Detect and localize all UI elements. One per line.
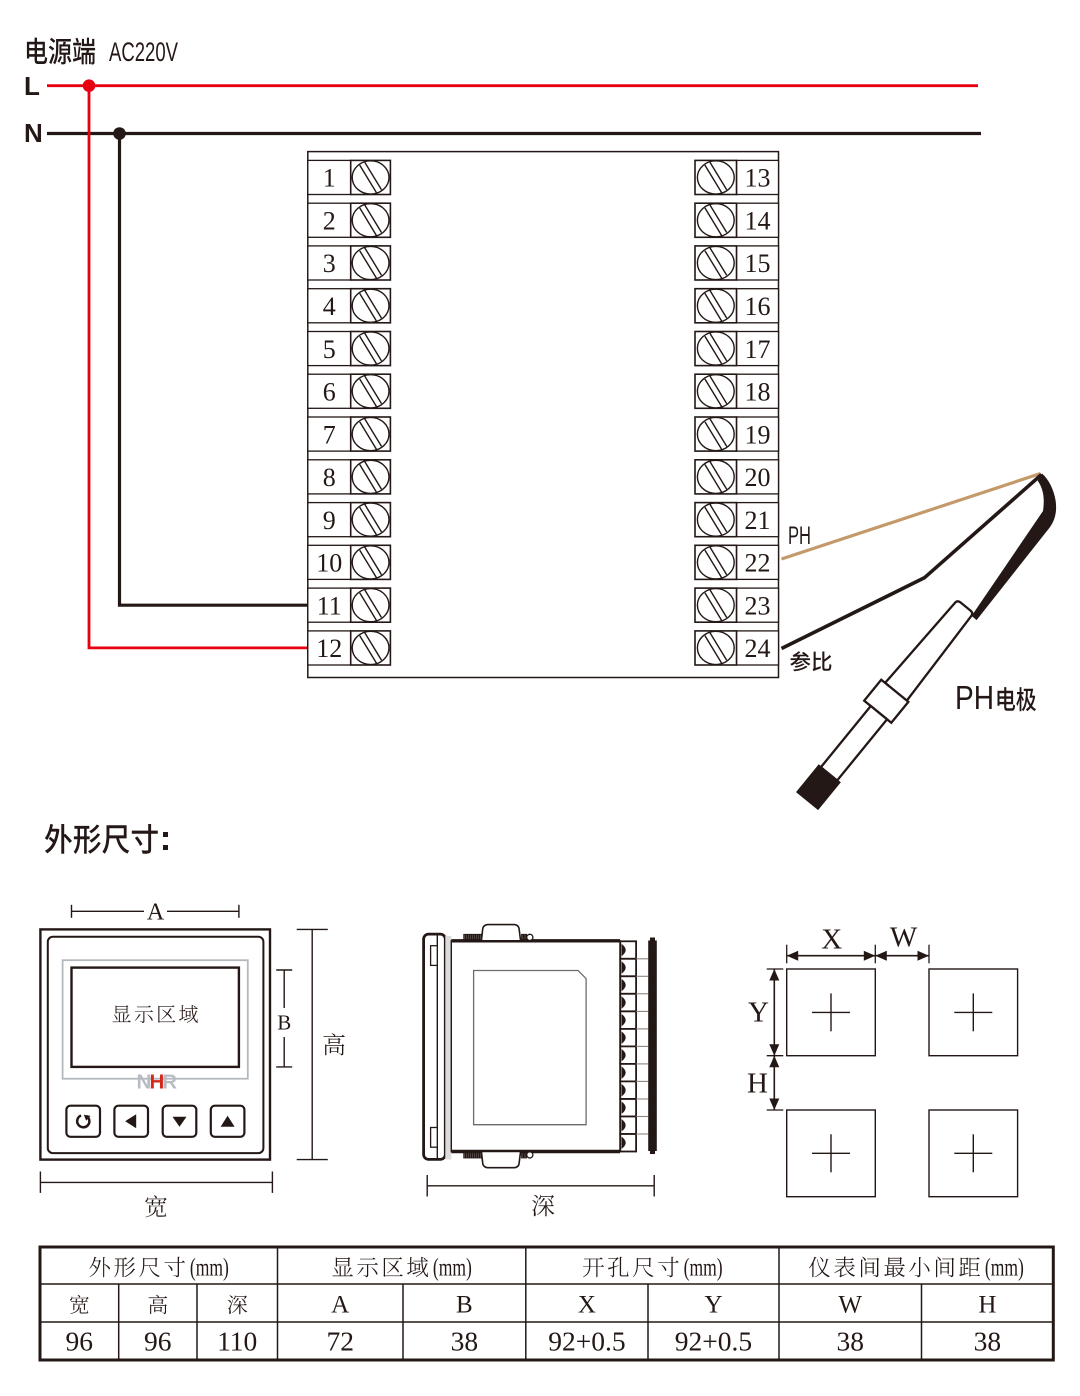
svg-text:AC220V: AC220V	[109, 37, 178, 67]
svg-text:92+0.5: 92+0.5	[548, 1326, 625, 1357]
svg-text:110: 110	[217, 1326, 257, 1357]
svg-text:17: 17	[745, 335, 771, 364]
svg-text:72: 72	[326, 1326, 354, 1357]
svg-text:24: 24	[745, 634, 771, 663]
svg-text:4: 4	[323, 292, 336, 321]
svg-text:38: 38	[974, 1326, 1002, 1357]
svg-text:96: 96	[144, 1326, 172, 1357]
svg-text:R: R	[162, 1071, 177, 1094]
svg-text:Y: Y	[704, 1292, 722, 1319]
svg-text:1: 1	[323, 164, 336, 193]
svg-text:16: 16	[745, 292, 771, 321]
svg-text:H: H	[150, 1071, 165, 1094]
svg-text:23: 23	[745, 591, 771, 620]
svg-text:38: 38	[836, 1326, 864, 1357]
svg-text:Y: Y	[748, 997, 769, 1029]
svg-text:(mm): (mm)	[433, 1255, 472, 1282]
svg-text:B: B	[456, 1292, 473, 1319]
svg-text:12: 12	[316, 634, 342, 663]
svg-text:10: 10	[316, 549, 342, 578]
svg-text:21: 21	[745, 506, 771, 535]
svg-text:3: 3	[323, 249, 336, 278]
svg-text:22: 22	[745, 549, 771, 578]
svg-text:11: 11	[317, 591, 342, 620]
svg-text:15: 15	[745, 249, 771, 278]
svg-text:N: N	[24, 118, 43, 148]
svg-text:20: 20	[745, 463, 771, 492]
svg-text:96: 96	[66, 1326, 94, 1357]
svg-text:38: 38	[451, 1326, 479, 1357]
svg-text:5: 5	[323, 335, 336, 364]
svg-text:13: 13	[745, 164, 771, 193]
svg-text:19: 19	[745, 420, 771, 449]
svg-text:A: A	[331, 1292, 349, 1319]
svg-text:14: 14	[745, 207, 771, 236]
svg-text:7: 7	[323, 420, 336, 449]
svg-text:X: X	[821, 924, 842, 956]
svg-text:PH: PH	[788, 522, 811, 550]
svg-text:8: 8	[323, 463, 336, 492]
svg-text:H: H	[978, 1292, 996, 1319]
svg-text:A: A	[147, 899, 165, 925]
svg-text:2: 2	[323, 207, 336, 236]
svg-text:6: 6	[323, 378, 336, 407]
svg-text:(mm): (mm)	[684, 1255, 723, 1282]
svg-text:X: X	[578, 1292, 596, 1319]
svg-text:(mm): (mm)	[985, 1255, 1024, 1282]
svg-text:PH: PH	[955, 679, 994, 716]
svg-text:W: W	[890, 922, 918, 954]
svg-text:92+0.5: 92+0.5	[675, 1326, 752, 1357]
svg-text:H: H	[747, 1068, 768, 1100]
svg-text:18: 18	[745, 378, 771, 407]
svg-text:9: 9	[323, 506, 336, 535]
svg-text:(mm): (mm)	[190, 1255, 229, 1282]
svg-text:B: B	[277, 1011, 291, 1035]
svg-text:L: L	[24, 71, 40, 101]
svg-text:W: W	[838, 1292, 862, 1319]
